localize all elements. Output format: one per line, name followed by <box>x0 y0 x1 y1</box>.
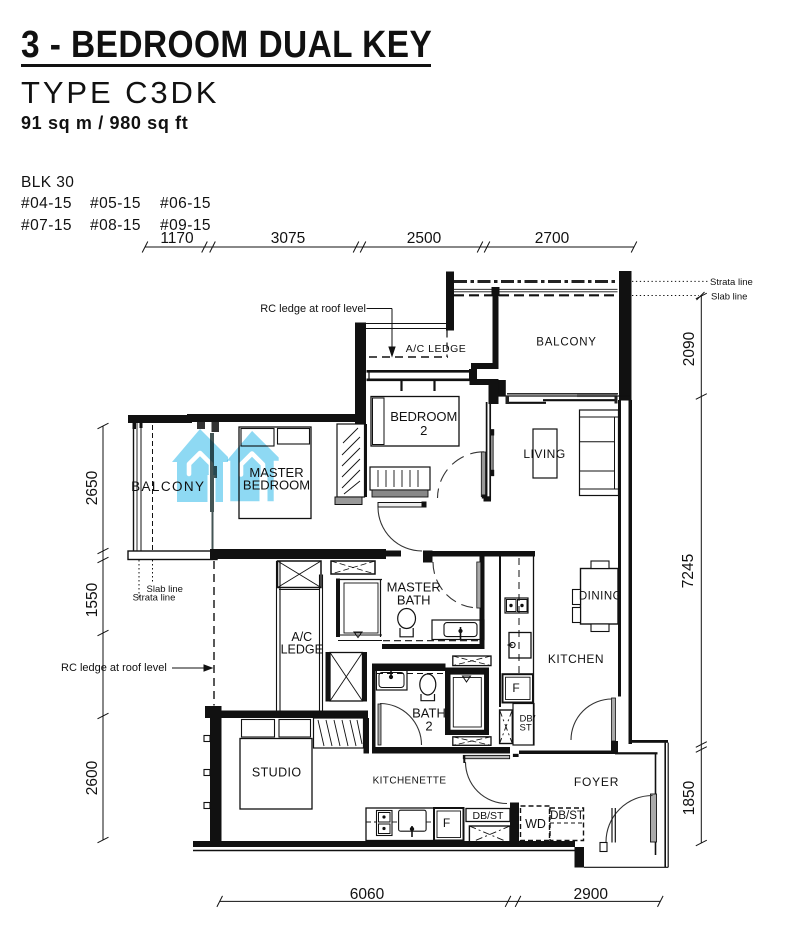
svg-text:DB/ST: DB/ST <box>550 810 584 822</box>
svg-text:7245: 7245 <box>680 554 697 588</box>
svg-text:F: F <box>443 816 450 830</box>
svg-text:DB/ST: DB/ST <box>473 810 505 822</box>
svg-text:91 sq m / 980 sq ft: 91 sq m / 980 sq ft <box>21 113 188 133</box>
svg-text:1170: 1170 <box>160 230 194 247</box>
svg-text:#07-15: #07-15 <box>21 217 72 234</box>
svg-text:BALCONY: BALCONY <box>536 337 597 349</box>
svg-text:6060: 6060 <box>350 886 385 903</box>
svg-text:KITCHENETTE: KITCHENETTE <box>373 776 447 787</box>
svg-text:BATH: BATH <box>397 593 431 608</box>
svg-text:STUDIO: STUDIO <box>252 766 302 780</box>
svg-text:BEDROOM: BEDROOM <box>390 409 457 424</box>
svg-text:KITCHEN: KITCHEN <box>548 652 604 666</box>
svg-text:#05-15: #05-15 <box>90 195 141 212</box>
svg-text:BLK 30: BLK 30 <box>21 174 74 191</box>
svg-text:WD: WD <box>525 817 546 831</box>
svg-text:2700: 2700 <box>535 230 570 247</box>
svg-text:RC ledge at roof level: RC ledge at roof level <box>260 303 366 315</box>
svg-text:LIVING: LIVING <box>523 447 565 461</box>
svg-text:FOYER: FOYER <box>574 775 619 789</box>
svg-text:RC ledge at roof level: RC ledge at roof level <box>61 662 167 674</box>
svg-text:#04-15: #04-15 <box>21 195 72 212</box>
svg-text:BEDROOM: BEDROOM <box>243 478 310 493</box>
svg-text:2: 2 <box>420 423 427 438</box>
svg-text:2650: 2650 <box>84 470 101 505</box>
svg-text:F: F <box>512 681 519 695</box>
svg-text:1550: 1550 <box>84 582 101 617</box>
svg-text:3 - BEDROOM DUAL KEY: 3 - BEDROOM DUAL KEY <box>21 23 432 65</box>
svg-text:LEDGE: LEDGE <box>281 643 323 657</box>
svg-text:TYPE C3DK: TYPE C3DK <box>21 75 219 110</box>
svg-text:1850: 1850 <box>681 780 698 815</box>
svg-text:Strata line: Strata line <box>133 593 176 604</box>
svg-text:3075: 3075 <box>271 230 305 247</box>
svg-text:BALCONY: BALCONY <box>131 479 205 494</box>
svg-text:2500: 2500 <box>407 230 442 247</box>
svg-text:2600: 2600 <box>84 760 101 795</box>
svg-text:2: 2 <box>425 719 432 734</box>
svg-text:ST: ST <box>520 723 532 734</box>
svg-text:2090: 2090 <box>681 331 698 366</box>
svg-text:DINING: DINING <box>579 591 622 603</box>
svg-text:Slab line: Slab line <box>711 292 747 303</box>
svg-text:#08-15: #08-15 <box>90 217 141 234</box>
svg-text:#06-15: #06-15 <box>160 195 211 212</box>
svg-text:2900: 2900 <box>573 886 608 903</box>
svg-text:Strata line: Strata line <box>710 277 753 288</box>
svg-text:A/C LEDGE: A/C LEDGE <box>406 343 467 355</box>
